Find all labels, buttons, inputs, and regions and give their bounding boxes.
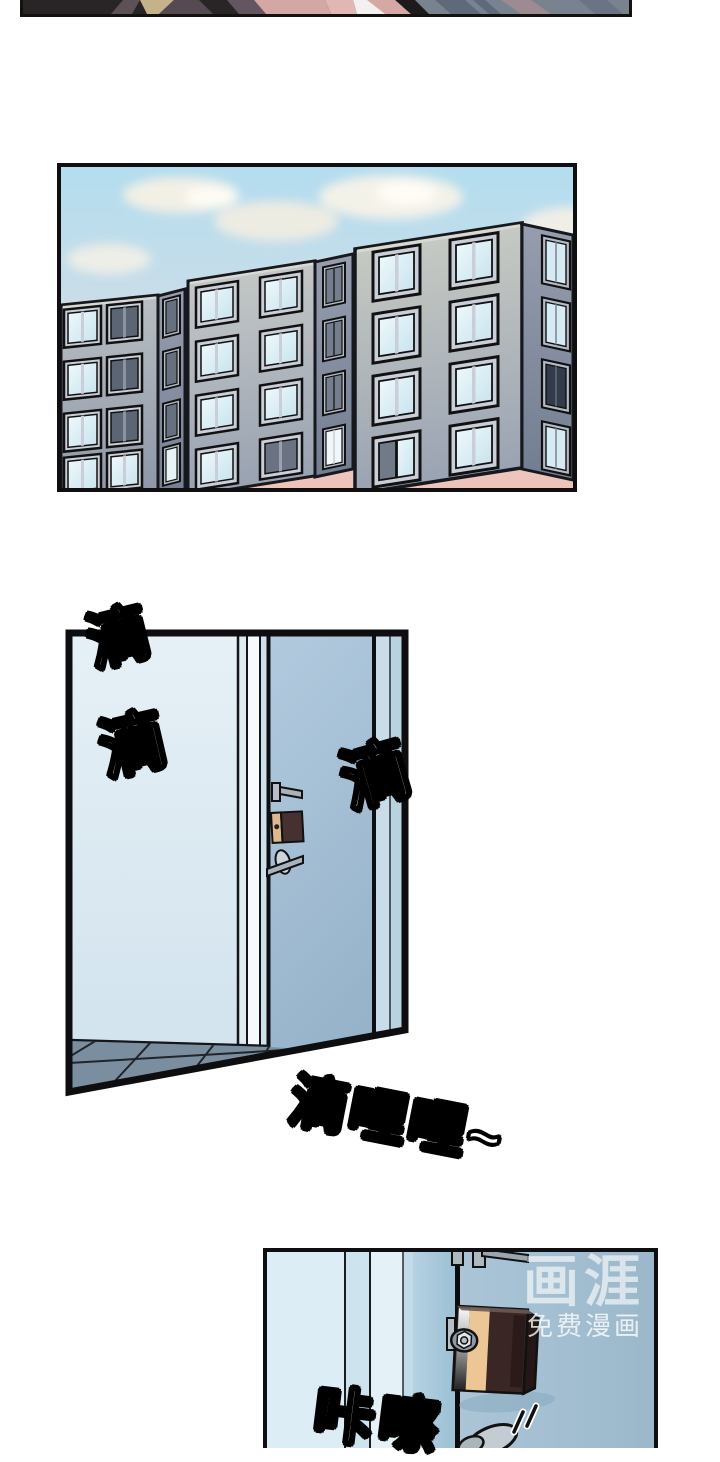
building-left [61,289,185,488]
buildings-art [61,167,573,488]
sfx-drip-trill: 滴哩哩~ [285,1072,508,1170]
building-right [355,223,573,488]
building-middle [188,254,353,488]
panel-teaser-strip [20,0,632,17]
lock-body [449,1306,539,1394]
panel-apartment-buildings [57,163,577,492]
sfx-lock-click: 咔嚓 [311,1384,447,1459]
teaser-strip-art [23,0,629,14]
door-lock [271,811,304,843]
lock-cylinder [451,1329,478,1352]
comic-page: { "sfx": { "drip_1": "滴", "drip_2": "滴",… [0,0,720,1440]
hall-wall [69,633,238,1053]
watermark-tagline: 免费漫画 [527,1306,643,1343]
